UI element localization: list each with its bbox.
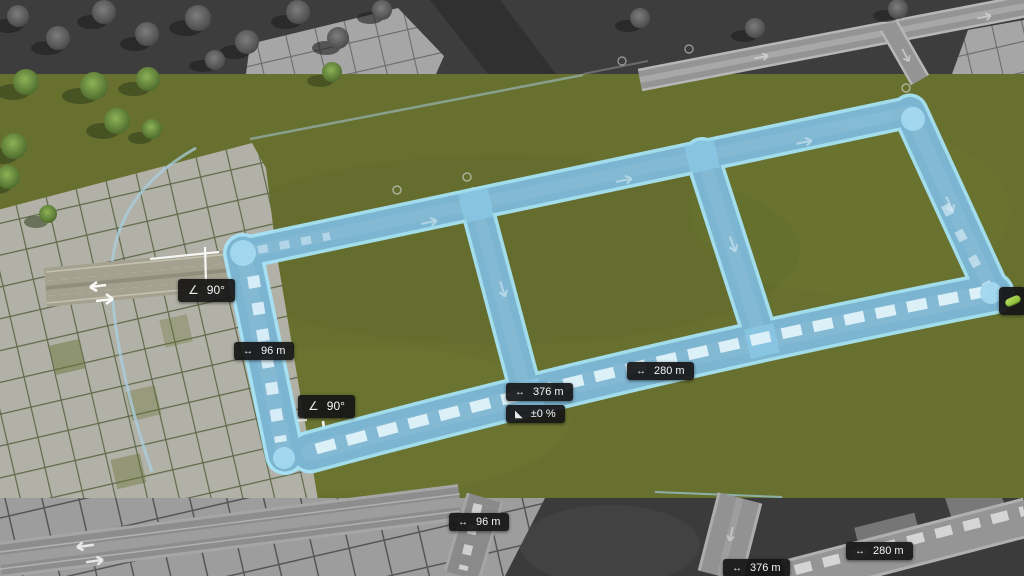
- width-readout: ↔ 96 m: [234, 342, 294, 360]
- length-value: 376 m: [750, 562, 781, 574]
- angle-value: 90°: [327, 400, 345, 413]
- length-readout: ↔ 376 m: [723, 559, 790, 576]
- money-pill-icon: [1004, 294, 1022, 308]
- angle-icon: ∠: [188, 284, 199, 297]
- cost-cursor-tooltip: [999, 287, 1024, 315]
- game-viewport: ∠ 90° ↔ 96 m ∠ 90° ↔ 376 m ◣ ±0 % ↔ 280 …: [0, 0, 1024, 576]
- width-value: 96 m: [476, 516, 500, 528]
- angle-readout: ∠ 90°: [178, 279, 235, 302]
- width-readout: ↔ 96 m: [449, 513, 509, 531]
- length-readout: ↔ 280 m: [846, 542, 913, 560]
- slope-value: ±0 %: [531, 408, 556, 420]
- length-value: 376 m: [533, 386, 564, 398]
- map-canvas[interactable]: [0, 0, 1024, 576]
- width-value: 96 m: [261, 345, 285, 357]
- length-arrow-icon: ↔: [636, 366, 646, 377]
- angle-icon: ∠: [308, 400, 319, 413]
- length-arrow-icon: ↔: [243, 346, 253, 357]
- length-value: 280 m: [654, 365, 685, 377]
- length-arrow-icon: ↔: [458, 517, 468, 528]
- inactive-road-96m: [462, 498, 485, 576]
- bottom-inactive-band: [0, 494, 1024, 576]
- length-arrow-icon: ↔: [855, 546, 865, 557]
- top-inactive-band: [0, 0, 1024, 80]
- slope-icon: ◣: [515, 409, 523, 420]
- length-arrow-icon: ↔: [732, 563, 742, 574]
- length-value: 280 m: [873, 545, 904, 557]
- angle-value: 90°: [207, 284, 225, 297]
- length-readout: ↔ 280 m: [627, 362, 694, 380]
- length-arrow-icon: ↔: [515, 387, 525, 398]
- slope-readout: ◣ ±0 %: [506, 405, 565, 423]
- length-readout: ↔ 376 m: [506, 383, 573, 401]
- angle-readout: ∠ 90°: [298, 395, 355, 418]
